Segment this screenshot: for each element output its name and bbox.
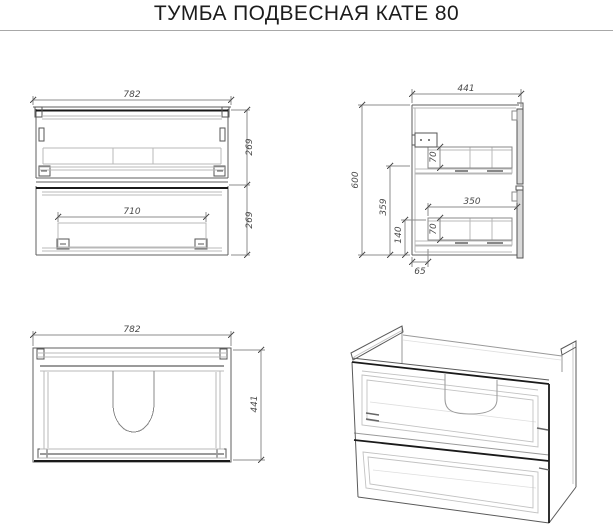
- drawing-canvas: 782 710 269 269 441 600 359 140 70 350: [0, 0, 613, 528]
- side-view: 441 600 359 140 70 350 70 65: [351, 84, 524, 277]
- drawing-sheet: ТУМБА ПОДВЕСНАЯ КАТЕ 80 782 710 269 269: [0, 0, 613, 528]
- side-height-dimension: 600: [351, 171, 361, 188]
- front-drawer-bottom-height-dimension: 269: [245, 211, 255, 228]
- side-back-offset-dimension: 65: [414, 267, 426, 277]
- top-dimension-lines: [33, 331, 265, 460]
- side-drawer-top-inner-dimension: 70: [429, 151, 439, 163]
- side-drawer-front-top: [517, 109, 523, 184]
- top-width-dimension: 782: [123, 325, 140, 335]
- side-handle-notch-bottom: [512, 192, 517, 201]
- side-bracket-dot-2: [428, 139, 430, 141]
- top-rail-bands: [40, 366, 224, 454]
- side-handle-notch-top: [512, 111, 517, 120]
- front-view: 782 710 269 269: [30, 90, 255, 258]
- iso-main-edges: [351, 326, 576, 523]
- front-drawer-top-edges: [36, 111, 228, 189]
- side-dimension-ticks: [359, 91, 524, 265]
- isometric-view: [351, 326, 576, 523]
- front-inner-lines: [40, 116, 224, 251]
- top-view: 782 441: [30, 325, 265, 463]
- iso-accent-edges: [352, 362, 549, 523]
- front-inner-width-dimension: 710: [123, 207, 140, 217]
- top-sink-cutout: [113, 371, 154, 432]
- side-mid-height-dimension: 359: [379, 198, 389, 215]
- iso-slide-details: [366, 413, 549, 470]
- top-inner-lines: [37, 353, 227, 458]
- side-drawer-bottom-inner-dimension: 70: [429, 223, 439, 235]
- front-width-dimension: 782: [123, 90, 140, 100]
- iso-secondary-edges: [354, 326, 562, 455]
- top-depth-dimension: 441: [250, 395, 260, 412]
- side-drawer-front-bottom: [517, 190, 523, 258]
- front-cabinet-outline: [33, 107, 231, 255]
- top-dimension-ticks: [30, 332, 264, 463]
- side-bracket-dot-1: [420, 139, 422, 141]
- front-drawer-top-height-dimension: 269: [245, 138, 255, 155]
- iso-drawer-inset-outlines: [354, 331, 573, 513]
- side-bottom-height-dimension: 140: [394, 226, 404, 243]
- side-drawer-depth-dimension: 350: [463, 197, 480, 207]
- side-depth-dimension: 441: [457, 84, 474, 94]
